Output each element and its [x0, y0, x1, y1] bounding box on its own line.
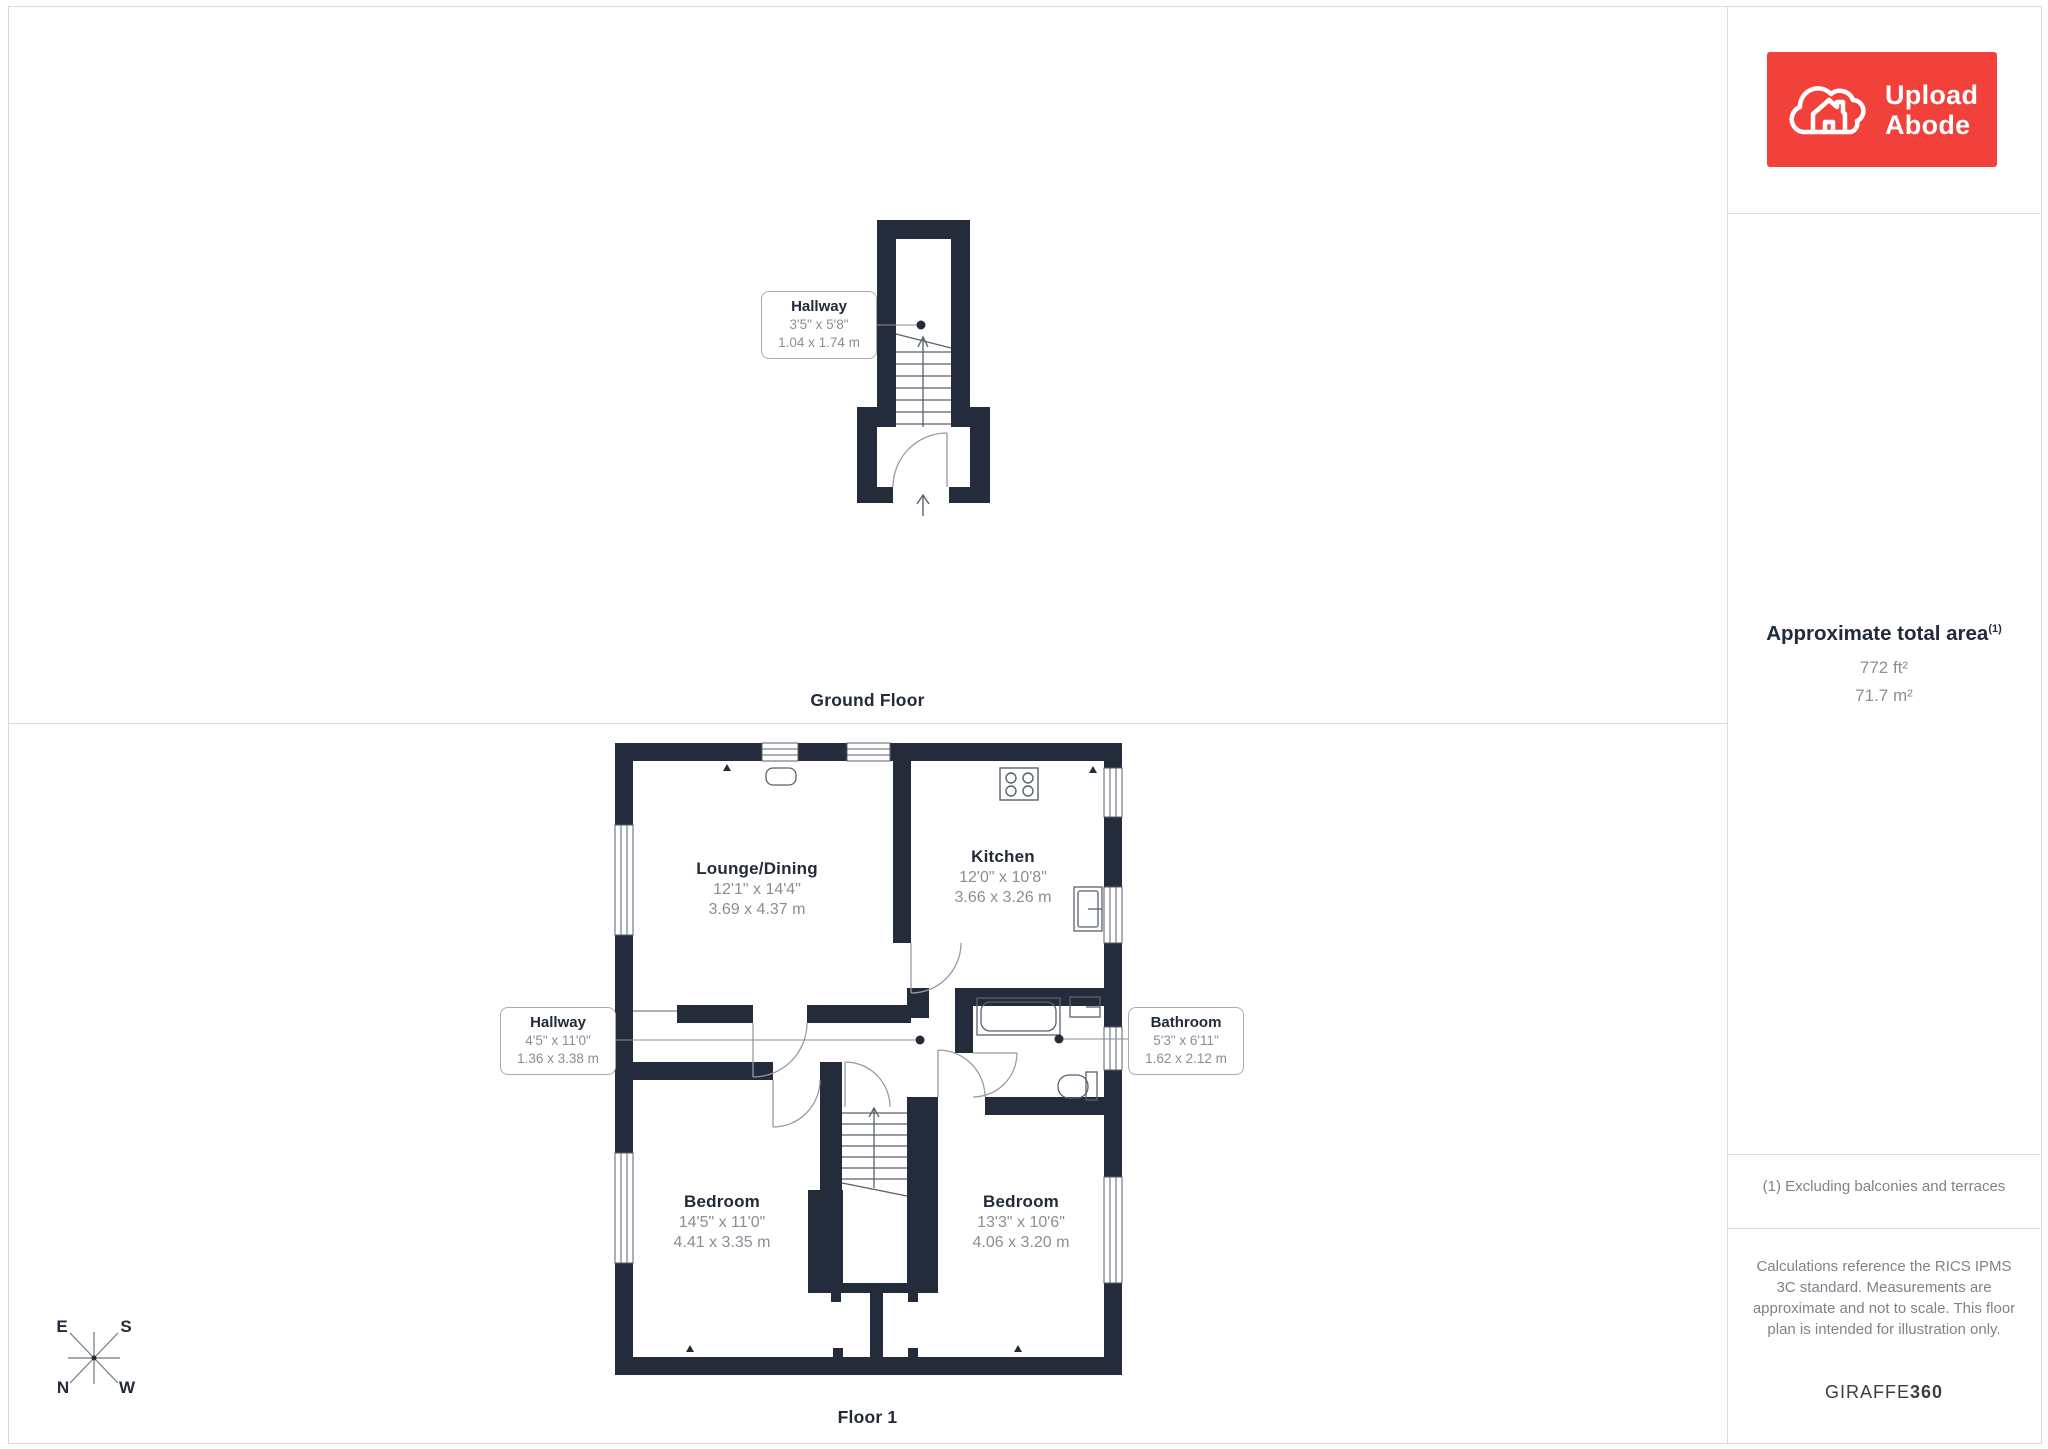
ground-hallway-callout: Hallway 3'5" x 5'8" 1.04 x 1.74 m	[761, 291, 877, 359]
bathroom-callout: Bathroom 5'3" x 6'11" 1.62 x 2.12 m	[1128, 1007, 1244, 1075]
sidebar-divider-bottom	[1728, 1228, 2040, 1229]
compass-east: E	[56, 1317, 67, 1337]
giraffe360-watermark: GIRAFFE360	[1728, 1382, 2040, 1403]
compass-west: W	[119, 1378, 135, 1398]
sidebar-divider-mid	[1728, 1154, 2040, 1155]
entrance-arrow-icon	[917, 495, 929, 516]
floor1-leaders	[613, 1035, 1128, 1045]
area-footnote-marker: (1)	[1988, 623, 2001, 635]
bedroom-left-label: Bedroom 14'5" x 11'0" 4.41 x 3.35 m	[674, 1191, 771, 1253]
ground-floor-entry-door	[893, 433, 947, 487]
compass-rose	[68, 1332, 120, 1384]
toilet-icon	[1058, 1072, 1097, 1100]
ground-floor-plan	[857, 220, 990, 516]
window-sill-icon	[766, 768, 796, 785]
hallway-callout: Hallway 4'5" x 11'0" 1.36 x 3.38 m	[500, 1007, 616, 1075]
floor1-walls	[615, 743, 1122, 1375]
disclaimer-text: Calculations reference the RICS IPMS 3C …	[1748, 1256, 2020, 1340]
ground-floor-title: Ground Floor	[8, 690, 1727, 711]
sidebar-divider-top	[1728, 213, 2040, 214]
bedroom-right-label: Bedroom 13'3" x 10'6" 4.06 x 3.20 m	[973, 1191, 1070, 1253]
logo-wordmark: Upload Abode	[1885, 80, 1978, 140]
compass-north: N	[57, 1378, 69, 1398]
footnote: (1) Excluding balconies and terraces	[1728, 1178, 2040, 1195]
area-value-m: 71.7 m²	[1728, 686, 2040, 706]
compass-south: S	[120, 1317, 131, 1337]
upload-abode-logo: Upload Abode	[1767, 52, 1997, 167]
area-value-ft: 772 ft²	[1728, 658, 2040, 678]
floor1-stairs	[842, 1108, 907, 1196]
floor1-plan	[613, 743, 1128, 1375]
ground-floor-stairs	[896, 334, 951, 427]
cloud-house-icon	[1787, 70, 1873, 150]
floorplan-page: Ground Floor Floor 1 Lounge/Dining 12'1"…	[0, 0, 2048, 1449]
floors-divider	[8, 723, 1727, 724]
area-heading: Approximate total area(1)	[1728, 622, 2040, 646]
hob-icon	[1000, 768, 1038, 800]
kitchen-label: Kitchen 12'0" x 10'8" 3.66 x 3.26 m	[955, 846, 1052, 908]
kitchen-sink-icon	[1074, 887, 1102, 931]
lounge-label: Lounge/Dining 12'1" x 14'4" 3.69 x 4.37 …	[696, 858, 818, 920]
floor1-title: Floor 1	[8, 1407, 1727, 1428]
